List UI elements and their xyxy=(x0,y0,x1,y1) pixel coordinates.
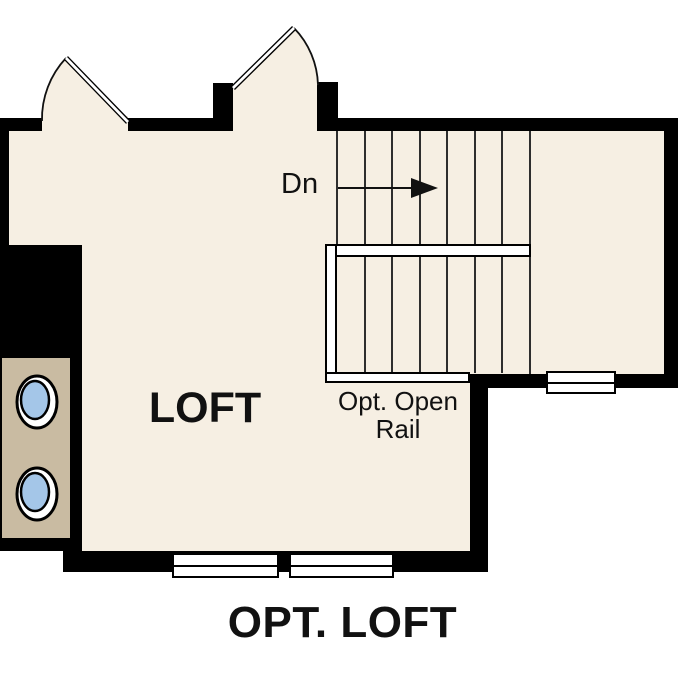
window-symbol xyxy=(172,553,279,578)
stair-tread-line xyxy=(364,131,366,245)
floor-plan: Dn LOFT Opt. Open Rail OPT. LOFT xyxy=(0,0,687,687)
solid-wall-block xyxy=(0,245,82,358)
wall-alcove-right xyxy=(70,358,82,553)
wall-alcove-bottom xyxy=(0,538,70,551)
open-rail-separator xyxy=(325,244,531,257)
open-rail-left xyxy=(325,244,337,383)
window-sill-line xyxy=(290,565,393,567)
wall-left xyxy=(0,118,9,250)
door-opening-right xyxy=(233,84,317,132)
stair-tread-line xyxy=(364,257,366,373)
window-sill-line xyxy=(547,382,615,384)
fixture-alcove xyxy=(0,358,70,538)
wall-top-mid xyxy=(128,118,213,131)
open-rail-label-line1: Opt. Open xyxy=(322,387,474,415)
stair-direction-label: Dn xyxy=(281,168,318,201)
door-swing-left-icon xyxy=(42,58,128,122)
stair-tread-line xyxy=(336,131,338,245)
window-sill-line xyxy=(173,565,278,567)
plan-title: OPT. LOFT xyxy=(155,598,530,648)
open-rail-label-line2: Rail xyxy=(322,415,474,443)
open-rail-bottom xyxy=(325,372,470,383)
stair-tread-line xyxy=(391,257,393,373)
stair-tread-line xyxy=(446,131,448,245)
stair-tread-line xyxy=(474,257,476,373)
stair-tread-line xyxy=(446,257,448,373)
window-symbol xyxy=(546,371,616,394)
window-symbol xyxy=(289,553,394,578)
stair-tread-line xyxy=(474,131,476,245)
stair-tread-line xyxy=(501,131,503,245)
stair-tread-line xyxy=(419,131,421,245)
stair-tread-line xyxy=(419,257,421,373)
door-swing-right-icon xyxy=(233,28,318,88)
wall-right xyxy=(664,118,678,388)
door-opening-left xyxy=(42,116,128,132)
open-rail-label: Opt. Open Rail xyxy=(322,387,474,443)
stair-tread-line xyxy=(391,131,393,245)
wall-pillar-left xyxy=(213,83,233,131)
stair-tread-line xyxy=(501,257,503,373)
room-label: LOFT xyxy=(139,384,271,433)
wall-top-right xyxy=(330,118,678,131)
